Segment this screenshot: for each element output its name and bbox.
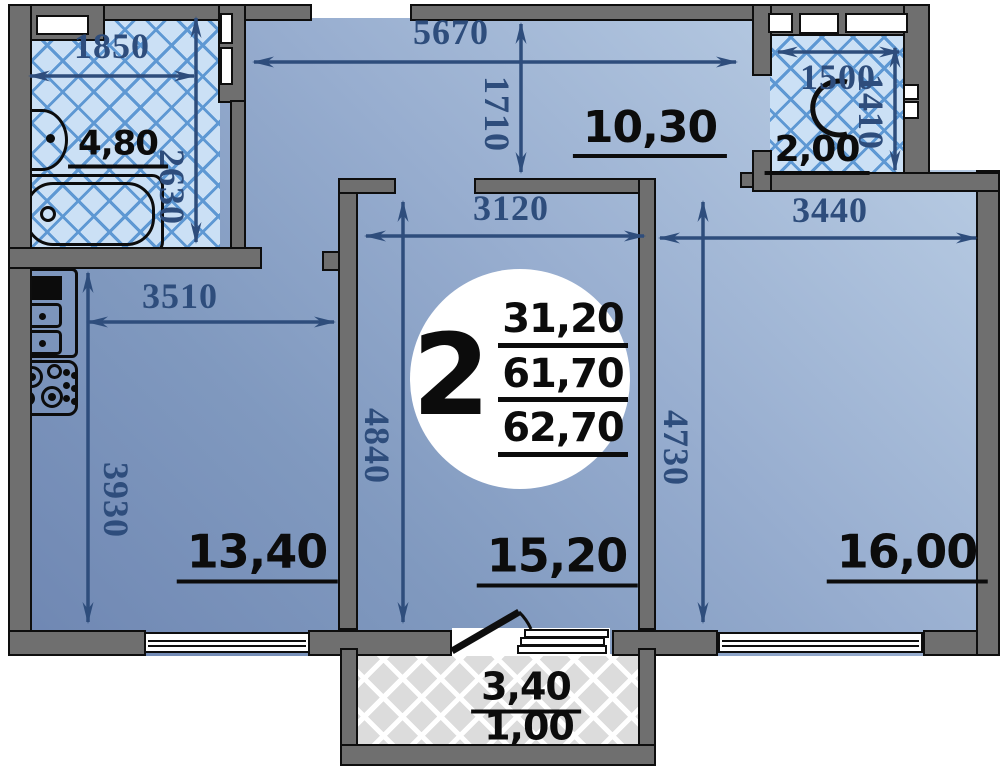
living-area-total: 31,20: [498, 297, 628, 348]
dim-label-bedroom-width: 3440: [792, 189, 868, 231]
apartment-summary-badge: 2 31,20 61,70 62,70: [410, 269, 630, 489]
wall-wc-bottom: [752, 172, 1000, 192]
stove-knob-icon: [63, 382, 70, 389]
bathtub-drain-icon: [40, 206, 56, 222]
wall-bathroom-bottom: [8, 247, 262, 269]
dim-label-hallway-height: 1710: [476, 76, 518, 152]
stove-knob-icon: [71, 372, 78, 379]
vent-window: [768, 13, 793, 33]
bathroom-door-leaf: [220, 47, 233, 85]
wall-bathroom-right-lower: [230, 100, 246, 250]
area-label-wc: 2,00: [765, 129, 870, 175]
sink-drain-icon: [39, 313, 46, 320]
washbasin-drain-icon: [46, 134, 55, 143]
kitchen-window: [144, 632, 310, 653]
rooms-count: 2: [412, 320, 490, 432]
area-label-bathroom: 4,80: [68, 124, 168, 169]
wc-hatch: [903, 101, 919, 119]
bedroom-window: [718, 632, 923, 653]
area-label-bedroom: 16,00: [827, 525, 988, 584]
vent-window: [845, 13, 908, 33]
stove-knob-icon: [71, 385, 78, 392]
burner-center-icon: [48, 393, 56, 401]
wall-bottom: [308, 630, 452, 656]
stove-knob-icon: [71, 398, 78, 405]
wall-kitchen-divider: [338, 178, 358, 630]
entrance-opening: [312, 0, 410, 18]
wall-hall-nub: [740, 172, 754, 188]
stove-knob-icon: [63, 395, 70, 402]
wall-bottom: [8, 630, 146, 656]
floor-plan: 1850 2630 5670 1710 1500 1410 3120 4840 …: [0, 0, 1007, 768]
dim-label-kitchen-height: 3930: [95, 462, 137, 538]
dim-label-living-height: 4840: [356, 408, 398, 484]
wc-hatch: [903, 84, 919, 100]
area-label-hallway: 10,30: [573, 102, 727, 158]
wall-left: [8, 4, 32, 656]
burner-icon: [47, 364, 62, 379]
area-label-living: 15,20: [477, 529, 638, 588]
area-label-kitchen: 13,40: [177, 525, 338, 584]
bathroom-door-leaf: [220, 13, 233, 44]
dim-label-bathroom-width: 1850: [74, 25, 150, 67]
sink-drain-icon: [39, 340, 46, 347]
vent-window: [799, 13, 839, 34]
overall-area-total: 62,70: [498, 406, 628, 457]
wall-bottom: [612, 630, 718, 656]
dim-label-living-width: 3120: [473, 187, 549, 229]
dim-label-kitchen-width: 3510: [142, 275, 218, 317]
area-label-balcony-counted: 1,00: [474, 705, 584, 750]
wall-living-bedroom-divider: [638, 178, 656, 630]
stove-knob-icon: [63, 369, 70, 376]
usable-area-total: 61,70: [498, 352, 628, 403]
dim-label-bedroom-height: 4730: [655, 410, 697, 486]
wall-kitchen-nub: [322, 251, 340, 271]
dim-label-hallway-width: 5670: [413, 11, 489, 53]
wall-living-top-left: [338, 178, 396, 194]
balcony-window-sill: [517, 645, 607, 654]
